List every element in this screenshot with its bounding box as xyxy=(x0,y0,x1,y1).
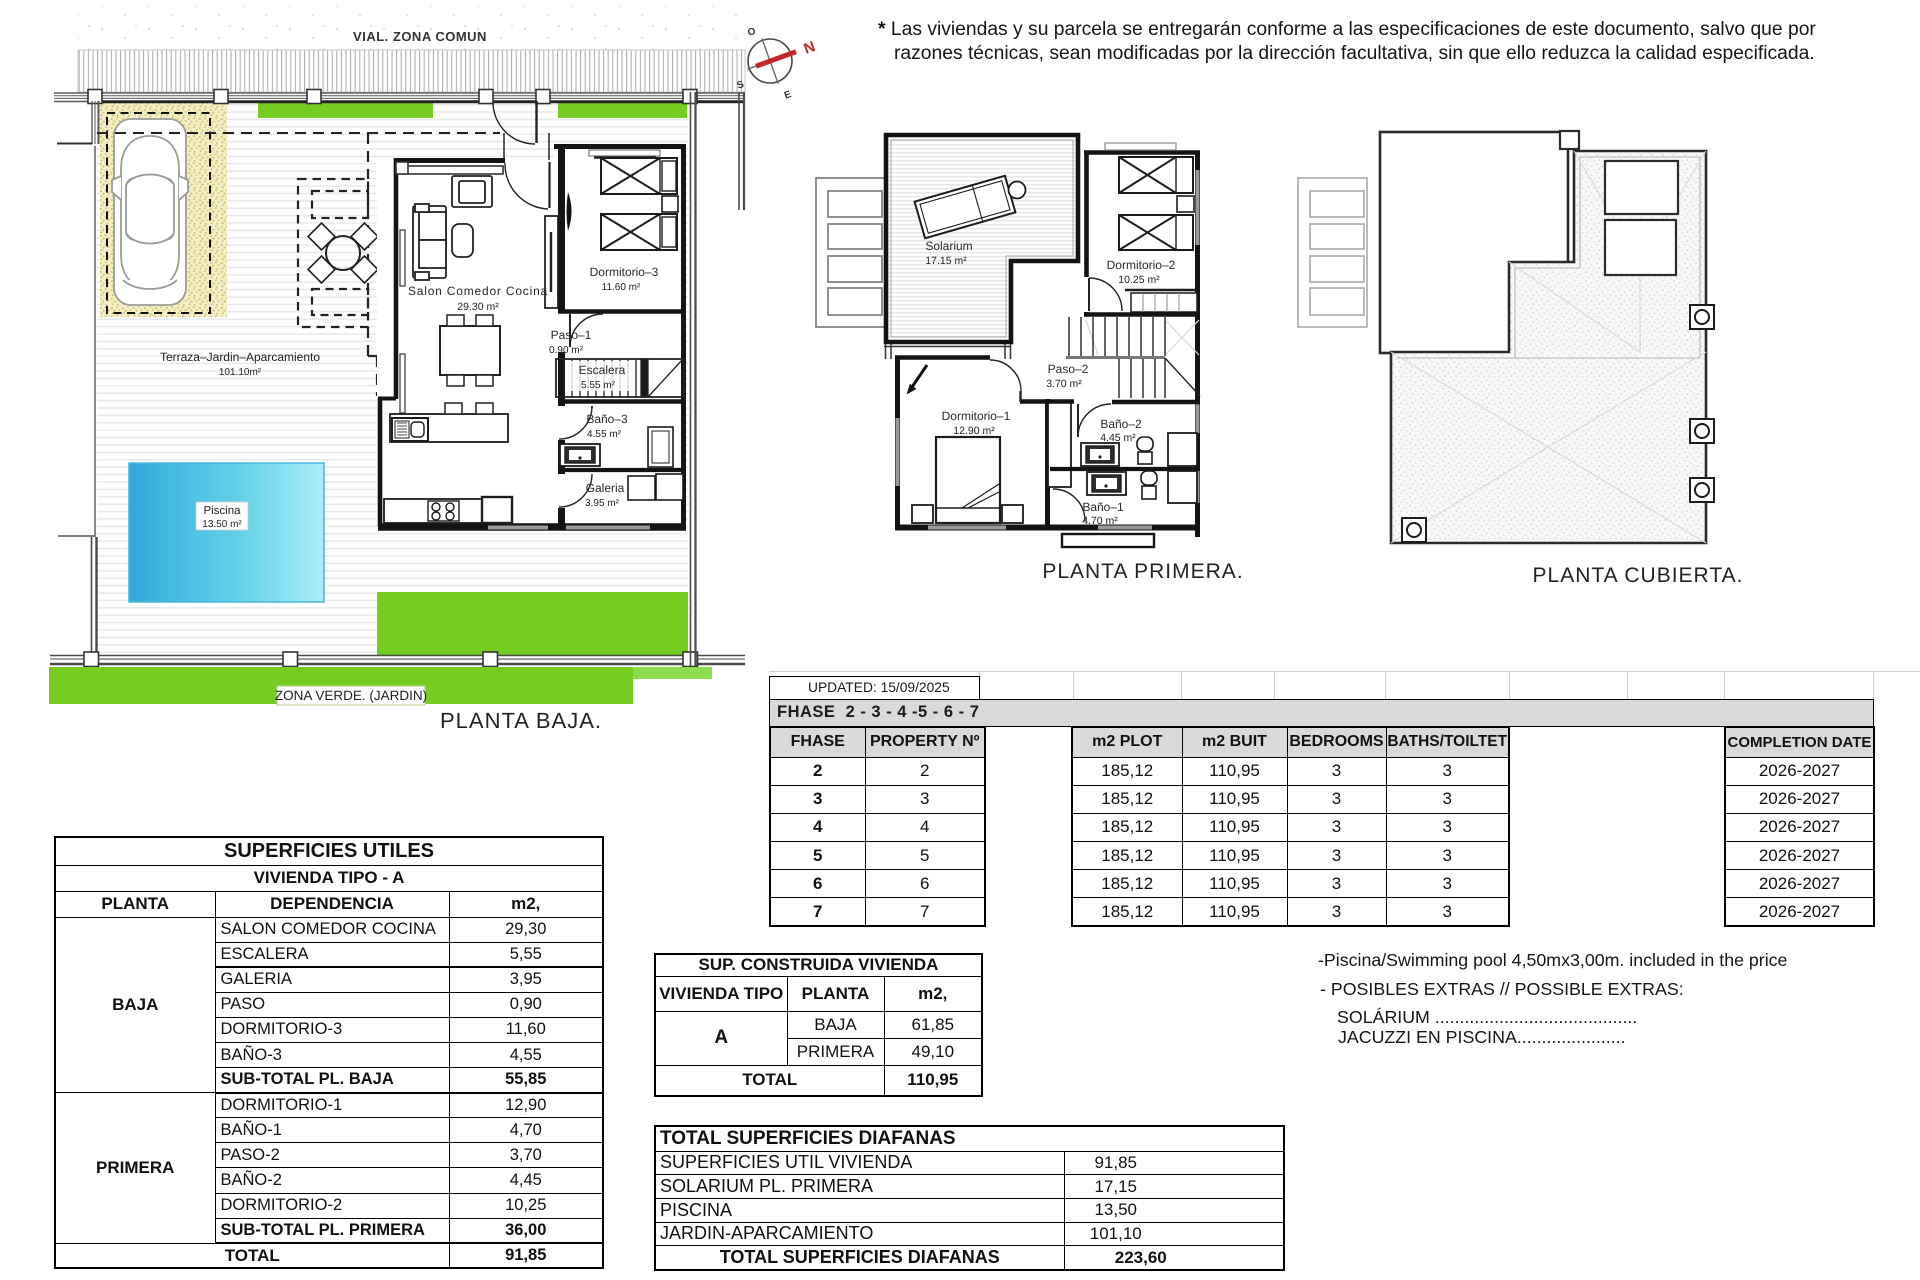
svg-text:11.60 m²: 11.60 m² xyxy=(602,282,641,293)
svg-text:Baño–1: Baño–1 xyxy=(1082,500,1124,514)
svg-text:PLANTA BAJA.: PLANTA BAJA. xyxy=(440,708,602,733)
svg-text:29.30 m²: 29.30 m² xyxy=(457,301,499,313)
svg-text:0.90 m²: 0.90 m² xyxy=(549,345,584,356)
svg-text:E: E xyxy=(783,89,793,102)
svg-text:4.70 m²: 4.70 m² xyxy=(1082,515,1118,527)
svg-text:17.15 m²: 17.15 m² xyxy=(925,255,967,267)
svg-text:Terraza–Jardin–Aparcamiento: Terraza–Jardin–Aparcamiento xyxy=(160,350,320,364)
svg-text:Baño–3: Baño–3 xyxy=(586,412,628,426)
svg-text:Solarium: Solarium xyxy=(925,239,972,253)
svg-text:Dormitorio–3: Dormitorio–3 xyxy=(590,265,659,279)
svg-text:3.95 m²: 3.95 m² xyxy=(585,498,620,509)
svg-text:13.50 m²: 13.50 m² xyxy=(202,519,242,530)
svg-text:Paso–2: Paso–2 xyxy=(1048,362,1089,376)
svg-text:Paso–1: Paso–1 xyxy=(551,328,592,342)
svg-text:3.70 m²: 3.70 m² xyxy=(1046,378,1082,390)
svg-text:PLANTA PRIMERA.: PLANTA PRIMERA. xyxy=(1042,560,1243,583)
svg-text:VIAL. ZONA COMUN: VIAL. ZONA COMUN xyxy=(353,29,487,44)
svg-text:5.55 m²: 5.55 m² xyxy=(581,380,616,391)
svg-text:Dormitorio–2: Dormitorio–2 xyxy=(1107,258,1176,272)
svg-text:ZONA VERDE. (JARDIN): ZONA VERDE. (JARDIN) xyxy=(275,688,427,703)
svg-text:Baño–2: Baño–2 xyxy=(1100,417,1142,431)
svg-text:4.55 m²: 4.55 m² xyxy=(587,429,622,440)
svg-text:O: O xyxy=(746,26,757,39)
svg-text:Piscina: Piscina xyxy=(203,505,241,517)
svg-text:N: N xyxy=(802,38,818,58)
svg-text:12.90 m²: 12.90 m² xyxy=(953,425,995,437)
svg-text:PLANTA CUBIERTA.: PLANTA CUBIERTA. xyxy=(1533,564,1744,587)
svg-text:Salon Comedor Cocina: Salon Comedor Cocina xyxy=(408,284,548,298)
svg-text:10.25 m²: 10.25 m² xyxy=(1118,274,1160,286)
svg-text:4.45 m²: 4.45 m² xyxy=(1100,432,1136,444)
svg-text:Dormitorio–1: Dormitorio–1 xyxy=(942,409,1011,423)
svg-text:Galeria: Galeria xyxy=(586,481,625,495)
svg-text:Escalera: Escalera xyxy=(579,363,626,377)
svg-text:101.10m²: 101.10m² xyxy=(219,367,262,378)
